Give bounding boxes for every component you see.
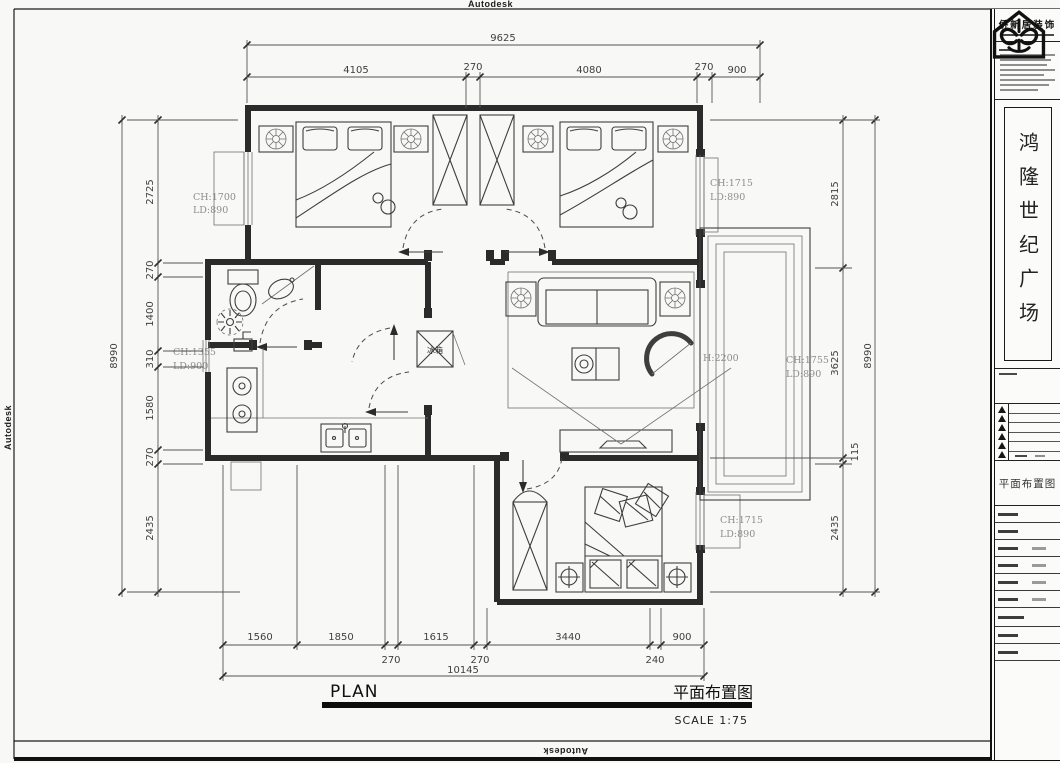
drawing-sheet: CH:1700 LD:890 CH:1355 LD:900 CH:1715 LD…	[0, 0, 1060, 763]
label-window-tl-ch: CH:1700	[193, 192, 236, 203]
bathroom-fixtures	[217, 266, 314, 351]
dimensions-top: 9625 4105 270 4080 270 900	[244, 33, 764, 108]
plan-title-en: PLAN	[330, 682, 378, 702]
dim-right-overall: 8990	[863, 343, 874, 368]
dim-left-overall: 8990	[109, 343, 120, 368]
dim-top-overall: 9625	[490, 33, 515, 44]
plan-caption: PLAN 平面布置图 SCALE 1:75	[322, 682, 753, 727]
autodesk-watermark-bottom: Autodesk	[543, 746, 588, 756]
dim-left-seg: 270	[145, 260, 156, 279]
label-window-br-ch: CH:1715	[720, 515, 763, 526]
dim-left-seg: 1580	[145, 395, 156, 420]
dim-top-seg: 270	[694, 62, 713, 73]
title-underline	[322, 702, 752, 708]
dim-top-seg: 4105	[343, 65, 368, 76]
walls	[205, 105, 705, 605]
label-window-ml-ch: CH:1355	[173, 347, 216, 358]
door-study	[352, 324, 398, 362]
sheet-frame	[14, 9, 1060, 759]
dim-top-seg: 270	[463, 62, 482, 73]
dim-bottom-overall: 10145	[447, 665, 479, 676]
door-bedroom2	[505, 209, 550, 256]
dim-right-seg: 3625	[830, 350, 841, 375]
dim-bottom-seg: 1560	[247, 632, 272, 643]
armchair	[647, 334, 691, 374]
titleblock-info-rows	[995, 506, 1060, 661]
bedroom3-furniture	[513, 483, 691, 592]
dim-top-seg: 900	[727, 65, 746, 76]
company-logo-icon	[992, 9, 1046, 61]
dim-left-seg: 2725	[145, 179, 156, 204]
label-window-tr-ld: LD:890	[710, 192, 745, 203]
dim-bottom-270: 270	[381, 655, 400, 666]
bedroom1-furniture	[259, 122, 428, 227]
project-name: 鸿隆世纪广场	[1018, 132, 1038, 336]
label-balcony-height: H:2200	[703, 353, 739, 364]
label-window-br-ld: LD:890	[720, 529, 755, 540]
project-name-box: 鸿隆世纪广场	[995, 100, 1060, 369]
dim-left-seg: 270	[145, 447, 156, 466]
autodesk-watermark-top: Autodesk	[468, 0, 513, 9]
throw-pillows	[595, 483, 669, 527]
label-window-ml-ld: LD:900	[173, 361, 208, 372]
dim-left-seg: 2435	[145, 515, 156, 540]
door-bedroom3	[519, 458, 562, 493]
drawing-title-cell: 平面布置图	[995, 461, 1060, 506]
kitchen-fixtures	[211, 348, 428, 490]
dim-right-seg: 2435	[830, 515, 841, 540]
dim-bottom-seg: 1850	[328, 632, 353, 643]
label-window-tl-ld: LD:890	[193, 205, 228, 216]
dim-right-seg: 2815	[830, 181, 841, 206]
autodesk-watermark-left: Autodesk	[3, 390, 13, 450]
hall-wardrobes	[433, 115, 514, 205]
label-balcony-win-ld: LD:890	[786, 369, 821, 380]
revision-table	[995, 404, 1060, 461]
dimensions-bottom: 1560 1850 1615 3440 900 270 270 240 1014…	[220, 465, 708, 681]
revision-markers	[995, 404, 1009, 460]
plan-scale: SCALE 1:75	[675, 714, 748, 727]
windows	[203, 152, 810, 550]
floor-plan-canvas: CH:1700 LD:890 CH:1355 LD:900 CH:1715 LD…	[0, 0, 1060, 763]
window-labels: CH:1700 LD:890 CH:1355 LD:900 CH:1715 LD…	[173, 178, 829, 540]
label-window-tr-ch: CH:1715	[710, 178, 753, 189]
doors	[256, 209, 562, 493]
door-kitchen	[365, 372, 409, 416]
label-fridge: 冰箱	[427, 345, 443, 355]
dim-bottom-240: 240	[645, 655, 664, 666]
dim-bottom-seg: 3440	[555, 632, 580, 643]
dim-left-seg: 310	[145, 349, 156, 368]
shower-icon	[217, 309, 243, 335]
title-block: 侨新居装饰 鸿隆世纪广场	[990, 9, 1060, 760]
dim-left-seg: 1400	[145, 301, 156, 326]
company-header: 侨新居装饰	[995, 9, 1060, 42]
label-balcony-win-ch: CH:1755	[786, 355, 829, 366]
door-bathroom	[256, 299, 303, 351]
dim-right-seg: 115	[850, 442, 861, 461]
dim-top-seg: 4080	[576, 65, 601, 76]
dim-bottom-seg: 900	[672, 632, 691, 643]
door-bedroom1	[398, 209, 443, 256]
bedroom2-furniture	[523, 122, 688, 227]
plan-title-cn: 平面布置图	[673, 683, 753, 702]
titleblock-small-row	[995, 373, 1060, 404]
dim-bottom-seg: 1615	[423, 632, 448, 643]
